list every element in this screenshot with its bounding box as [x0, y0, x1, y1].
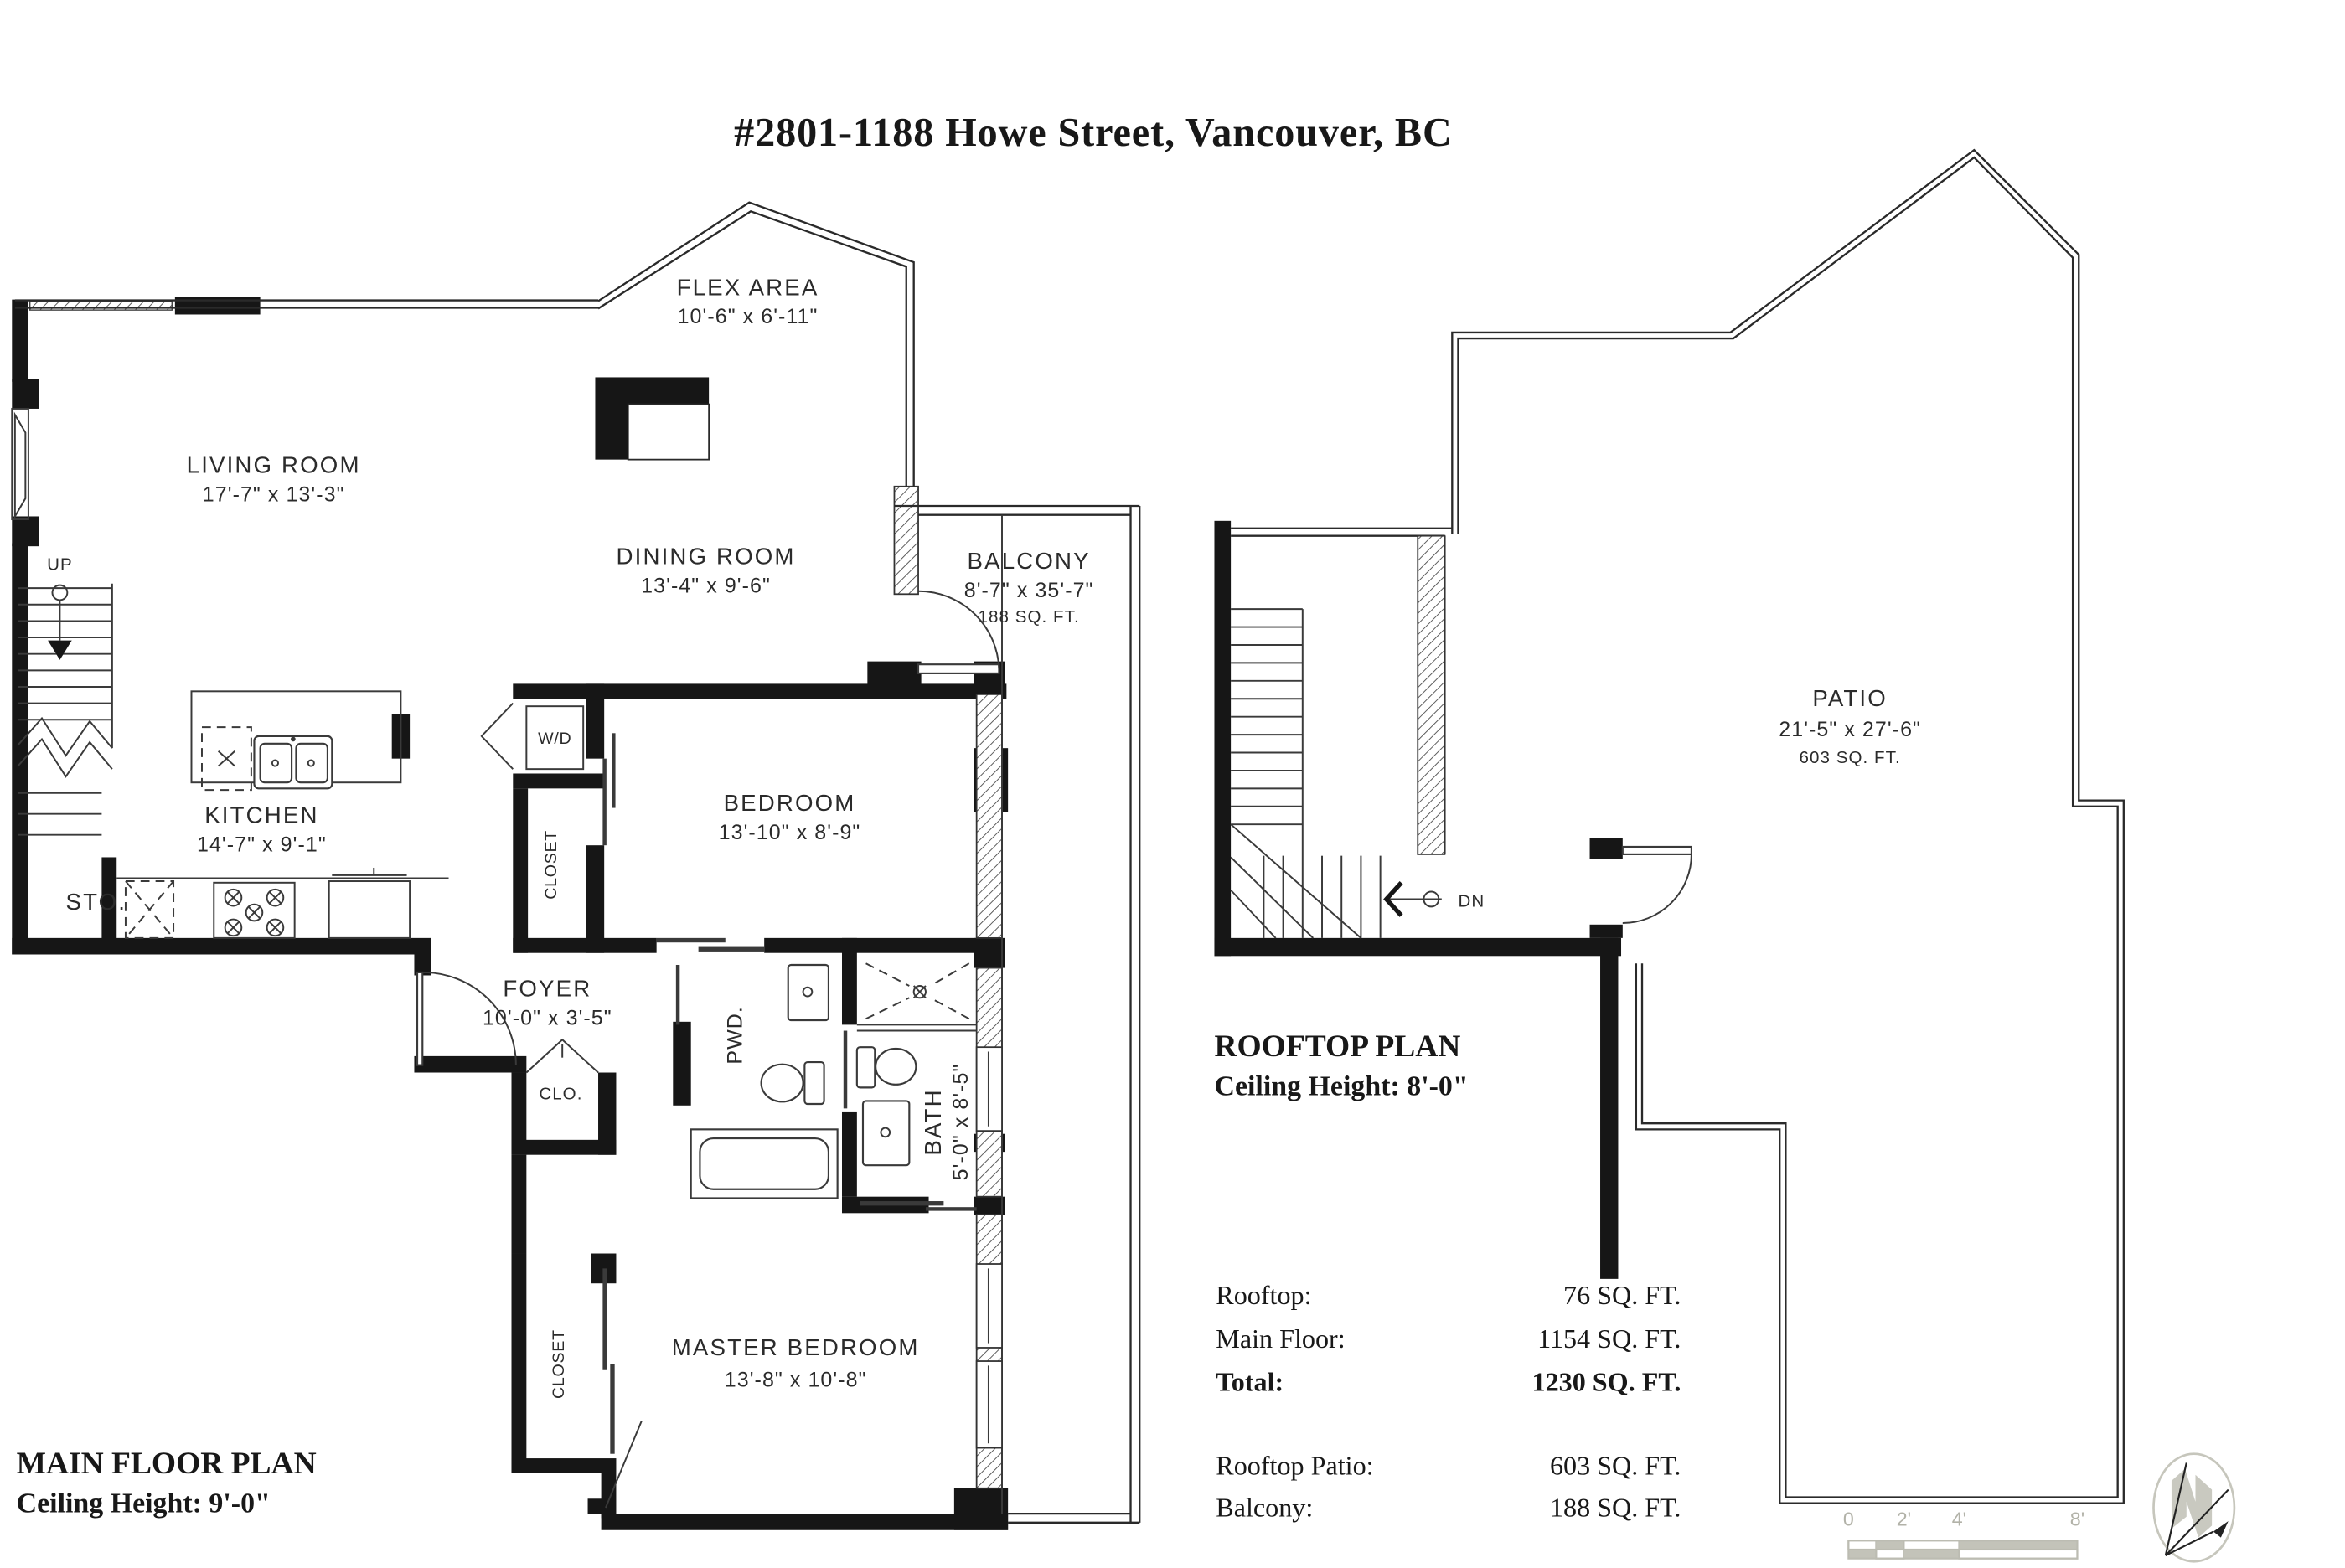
pwd-toilet	[762, 1062, 824, 1104]
foyer-closet-label: CLO.	[539, 1085, 582, 1104]
floor-plan-canvas: #2801-1188 Howe Street, Vancouver, BC	[0, 0, 2345, 1568]
dining-room-label: DINING ROOM	[617, 544, 796, 570]
master-bedroom-label: MASTER BEDROOM	[672, 1334, 920, 1360]
bedroom-dims: 13'-10" x 8'-9"	[719, 821, 861, 844]
dining-room-dims: 13'-4" x 9'-6"	[641, 575, 771, 598]
stove	[214, 883, 294, 938]
media-unit	[595, 377, 709, 459]
kitchen-label: KITCHEN	[204, 802, 318, 828]
compass-logo	[2154, 1454, 2234, 1562]
rooftop-plan-title: ROOFTOP PLAN	[1214, 1029, 1460, 1064]
patio-label: PATIO	[1812, 685, 1888, 711]
patio-labels: PATIO 21'-5" x 27'-6" 603 SQ. FT.	[1779, 685, 1921, 767]
main-floor-plan: UP	[12, 203, 1139, 1530]
table-row-value: 188 SQ. FT.	[1550, 1493, 1681, 1523]
table-row-label: Balcony:	[1216, 1493, 1313, 1523]
patio-outline	[1452, 150, 2123, 1503]
flex-area-label: FLEX AREA	[677, 274, 819, 300]
balcony	[894, 506, 1139, 1523]
master-closet-doors	[602, 1268, 614, 1453]
table-row-label: Rooftop:	[1216, 1280, 1311, 1310]
table-row-value: 1154 SQ. FT.	[1537, 1323, 1681, 1354]
balcony-door	[918, 591, 999, 673]
wd-label: W/D	[538, 730, 571, 748]
scale-tick: 4'	[1952, 1508, 1966, 1529]
bath-toilet	[857, 1047, 917, 1087]
area-table: Rooftop: 76 SQ. FT. Main Floor: 1154 SQ.…	[1216, 1280, 1681, 1522]
rooftop-stairs	[1231, 609, 1381, 938]
room-labels: LIVING ROOM 17'-7" x 13'-3" FLEX AREA 10…	[66, 274, 1094, 1399]
dn-label: DN	[1458, 891, 1485, 910]
powder-label: PWD.	[723, 1006, 746, 1065]
balcony-area: 188 SQ. FT.	[979, 607, 1080, 627]
bedroom-closet-label: CLOSET	[542, 830, 560, 900]
bath-label: BATH	[920, 1088, 946, 1155]
master-closet-label: CLOSET	[550, 1329, 568, 1399]
kitchen-sink	[254, 736, 332, 788]
bathtub	[691, 1129, 838, 1198]
bedroom-sliding-door	[657, 938, 765, 952]
living-room-label: LIVING ROOM	[187, 452, 361, 478]
bath-sink	[863, 1101, 909, 1165]
balcony-dims: 8'-7" x 35'-7"	[964, 579, 1094, 602]
master-bedroom-dims: 13'-8" x 10'-8"	[725, 1368, 867, 1391]
scale-tick: 0	[1843, 1508, 1854, 1529]
foyer-closet-doors	[526, 1039, 598, 1072]
pwd-sink	[788, 965, 829, 1020]
up-stairs: UP	[18, 555, 111, 835]
bedroom-label: BEDROOM	[724, 790, 856, 816]
table-row-label-total: Total:	[1216, 1367, 1284, 1397]
foyer-dims: 10'-0" x 3'-5"	[483, 1006, 612, 1029]
living-room-dims: 17'-7" x 13'-3"	[203, 483, 345, 507]
table-row-label: Rooftop Patio:	[1216, 1451, 1373, 1481]
table-row-value: 603 SQ. FT.	[1550, 1451, 1681, 1481]
powder-room	[676, 965, 829, 1104]
rooftop-door	[1623, 847, 1692, 923]
rooftop-plan-ceiling: Ceiling Height: 8'-0"	[1214, 1070, 1468, 1101]
balcony-label: BALCONY	[968, 548, 1091, 574]
up-label: UP	[47, 555, 73, 575]
foyer-label: FOYER	[503, 975, 591, 1001]
scale-tick: 8'	[2070, 1508, 2084, 1529]
page-title: #2801-1188 Howe Street, Vancouver, BC	[734, 111, 1453, 155]
dn-arrow-icon	[1387, 883, 1442, 916]
storage-label: STO.	[66, 889, 127, 915]
bathroom	[691, 963, 977, 1210]
flex-area-dims: 10'-6" x 6'-11"	[678, 305, 819, 328]
living-room-window	[12, 409, 28, 519]
patio-dims: 21'-5" x 27'-6"	[1779, 718, 1921, 741]
shower	[857, 963, 977, 1030]
main-plan-ceiling: Ceiling Height: 9'-0"	[17, 1488, 271, 1519]
kitchen-dims: 14'-7" x 9'-1"	[197, 833, 327, 856]
thin-walls	[15, 203, 914, 487]
main-plan-title: MAIN FLOOR PLAN	[17, 1447, 317, 1481]
patio-area: 603 SQ. FT.	[1800, 748, 1901, 767]
scale-bar: 0 2' 4' 8'	[1843, 1508, 2084, 1558]
floor-plan-page: #2801-1188 Howe Street, Vancouver, BC	[0, 0, 2345, 1568]
up-arrow-icon	[48, 585, 72, 660]
table-row-value-total: 1230 SQ. FT.	[1532, 1367, 1681, 1397]
kitchen-island	[191, 691, 400, 790]
scale-tick: 2'	[1897, 1508, 1911, 1529]
table-row-label: Main Floor:	[1216, 1323, 1345, 1354]
table-row-value: 76 SQ. FT.	[1563, 1280, 1681, 1310]
kitchen-counter	[116, 868, 448, 938]
bath-dims: 5'-0" x 8'-5"	[949, 1064, 973, 1181]
